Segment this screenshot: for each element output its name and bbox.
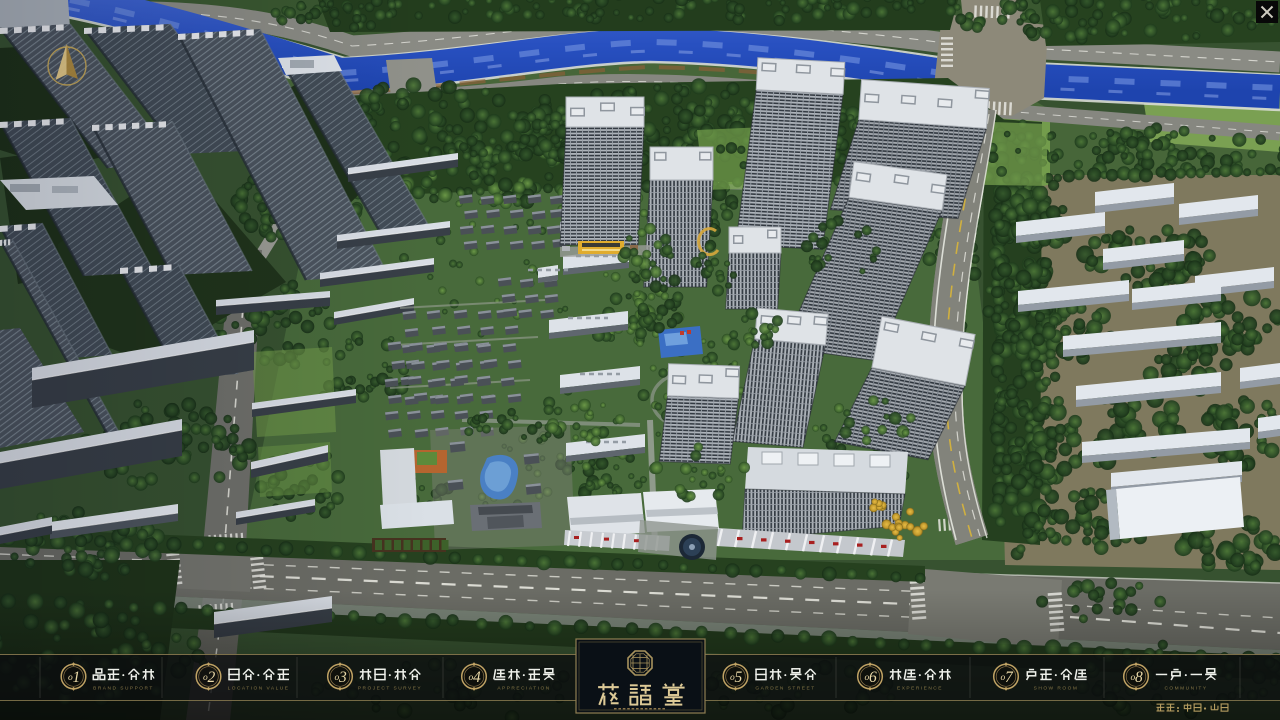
svg-text:3: 3	[338, 669, 347, 686]
svg-text:EXPERIENCE: EXPERIENCE	[897, 686, 943, 692]
svg-text:7: 7	[1005, 669, 1014, 686]
svg-text:8: 8	[1135, 669, 1143, 686]
svg-text:1: 1	[73, 669, 81, 686]
svg-text:5: 5	[735, 669, 743, 686]
svg-text:APPRECIATION: APPRECIATION	[497, 686, 550, 692]
svg-text:2: 2	[208, 669, 216, 686]
svg-text:PROJECT SURVEY: PROJECT SURVEY	[358, 686, 422, 692]
svg-text:LOCATION VALUE: LOCATION VALUE	[228, 686, 290, 692]
svg-text:GARDEN STREET: GARDEN STREET	[755, 686, 815, 692]
svg-text:BRAND SUPPORT: BRAND SUPPORT	[93, 686, 154, 692]
svg-text:COMMUNITY: COMMUNITY	[1164, 686, 1207, 692]
svg-text:SHOW ROOM: SHOW ROOM	[1034, 686, 1079, 692]
svg-text:4: 4	[473, 669, 481, 686]
svg-text:6: 6	[869, 669, 877, 686]
